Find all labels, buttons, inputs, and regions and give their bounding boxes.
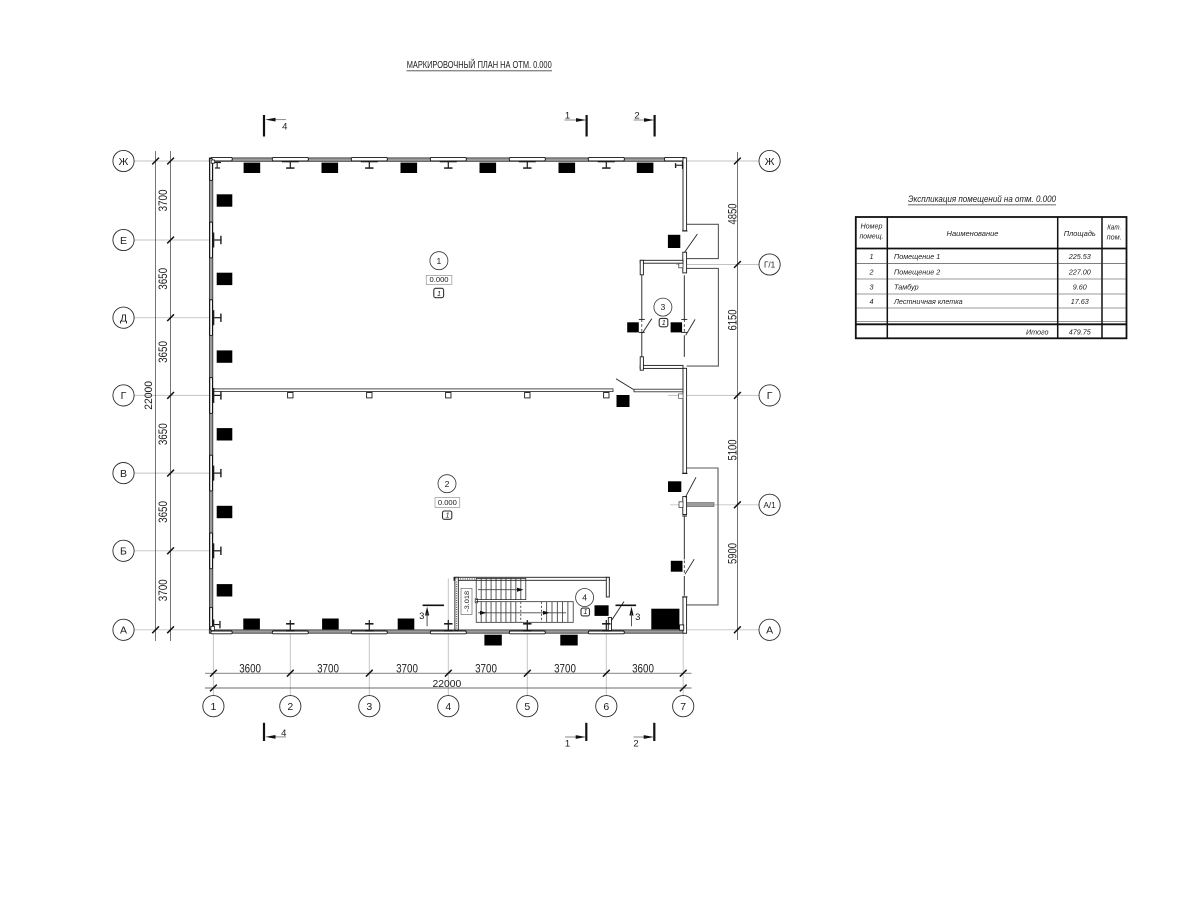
svg-text:МАРКИРОВОЧНЫЙ ПЛАН НА ОТМ. 0.0: МАРКИРОВОЧНЫЙ ПЛАН НА ОТМ. 0.000 xyxy=(407,58,552,71)
svg-text:3700: 3700 xyxy=(554,661,576,675)
svg-text:Итого: Итого xyxy=(1026,328,1049,337)
svg-text:Б: Б xyxy=(120,546,127,558)
svg-text:227.00: 227.00 xyxy=(1068,268,1091,277)
svg-text:3700: 3700 xyxy=(396,661,418,675)
svg-text:Лестничная клетка: Лестничная клетка xyxy=(893,297,963,306)
svg-text:3: 3 xyxy=(419,611,424,622)
svg-text:1: 1 xyxy=(437,256,442,266)
svg-text:Ж: Ж xyxy=(765,156,775,168)
svg-text:А/1: А/1 xyxy=(763,501,776,510)
svg-text:5100: 5100 xyxy=(725,439,739,460)
svg-text:9.60: 9.60 xyxy=(1073,283,1087,292)
svg-text:Ж: Ж xyxy=(119,156,129,168)
svg-text:2: 2 xyxy=(633,739,638,750)
svg-text:3700: 3700 xyxy=(156,189,170,211)
svg-text:2: 2 xyxy=(869,268,874,277)
svg-text:225.53: 225.53 xyxy=(1068,252,1091,261)
svg-text:В: В xyxy=(120,468,127,480)
svg-text:3: 3 xyxy=(635,612,640,623)
svg-text:22000: 22000 xyxy=(143,381,155,410)
svg-text:-3.018: -3.018 xyxy=(464,590,471,612)
svg-text:4: 4 xyxy=(870,297,874,306)
svg-text:2: 2 xyxy=(445,479,450,489)
svg-text:Д: Д xyxy=(120,312,127,324)
svg-text:4850: 4850 xyxy=(725,203,739,224)
svg-text:Тамбур: Тамбур xyxy=(894,283,919,292)
svg-text:3650: 3650 xyxy=(156,501,170,523)
svg-text:6150: 6150 xyxy=(725,309,739,330)
svg-text:2: 2 xyxy=(634,111,639,122)
svg-text:3650: 3650 xyxy=(156,341,170,363)
svg-text:4: 4 xyxy=(282,122,287,133)
svg-text:1: 1 xyxy=(210,701,216,713)
svg-text:4: 4 xyxy=(281,728,286,739)
svg-text:3650: 3650 xyxy=(156,268,170,290)
svg-text:4: 4 xyxy=(582,593,587,603)
svg-text:22000: 22000 xyxy=(433,678,462,690)
svg-text:Г/1: Г/1 xyxy=(764,260,776,269)
svg-text:3700: 3700 xyxy=(156,579,170,601)
svg-text:5900: 5900 xyxy=(725,543,739,564)
svg-text:1: 1 xyxy=(565,111,570,122)
svg-text:7: 7 xyxy=(680,701,686,713)
svg-text:1: 1 xyxy=(445,510,449,519)
svg-text:3: 3 xyxy=(870,283,874,292)
svg-text:Кат.: Кат. xyxy=(1107,225,1121,232)
svg-text:3600: 3600 xyxy=(239,661,261,675)
svg-text:Площадь: Площадь xyxy=(1064,230,1096,238)
svg-text:3700: 3700 xyxy=(475,661,497,675)
svg-text:3700: 3700 xyxy=(317,661,339,675)
svg-text:Помещение 1: Помещение 1 xyxy=(894,252,940,261)
svg-text:1: 1 xyxy=(662,318,666,327)
svg-text:3: 3 xyxy=(661,302,666,312)
svg-text:А: А xyxy=(766,625,773,637)
svg-text:2: 2 xyxy=(287,701,293,713)
svg-text:Наименование: Наименование xyxy=(947,231,999,238)
svg-text:1: 1 xyxy=(437,289,441,298)
svg-text:Г: Г xyxy=(121,390,127,402)
svg-text:Г: Г xyxy=(767,390,773,402)
svg-text:Номер: Номер xyxy=(861,224,883,231)
svg-text:1: 1 xyxy=(565,739,570,750)
svg-text:1: 1 xyxy=(584,607,588,616)
svg-text:6: 6 xyxy=(603,701,609,713)
svg-text:3650: 3650 xyxy=(156,423,170,445)
svg-text:пом.: пом. xyxy=(1107,235,1122,242)
svg-text:Помещение 2: Помещение 2 xyxy=(894,268,940,277)
svg-text:0.000: 0.000 xyxy=(438,499,457,507)
svg-text:479.75: 479.75 xyxy=(1069,328,1092,337)
svg-text:4: 4 xyxy=(445,701,451,713)
svg-text:3600: 3600 xyxy=(632,661,654,675)
svg-text:17.63: 17.63 xyxy=(1071,297,1089,306)
svg-text:Е: Е xyxy=(120,235,127,247)
svg-text:А: А xyxy=(120,625,127,637)
svg-text:Экспликация помещений на отм.: Экспликация помещений на отм. 0.000 xyxy=(908,194,1056,204)
svg-text:3: 3 xyxy=(366,701,372,713)
svg-text:5: 5 xyxy=(524,701,530,713)
svg-text:помещ.: помещ. xyxy=(860,234,884,241)
svg-text:1: 1 xyxy=(870,252,874,261)
svg-text:0.000: 0.000 xyxy=(430,276,449,284)
